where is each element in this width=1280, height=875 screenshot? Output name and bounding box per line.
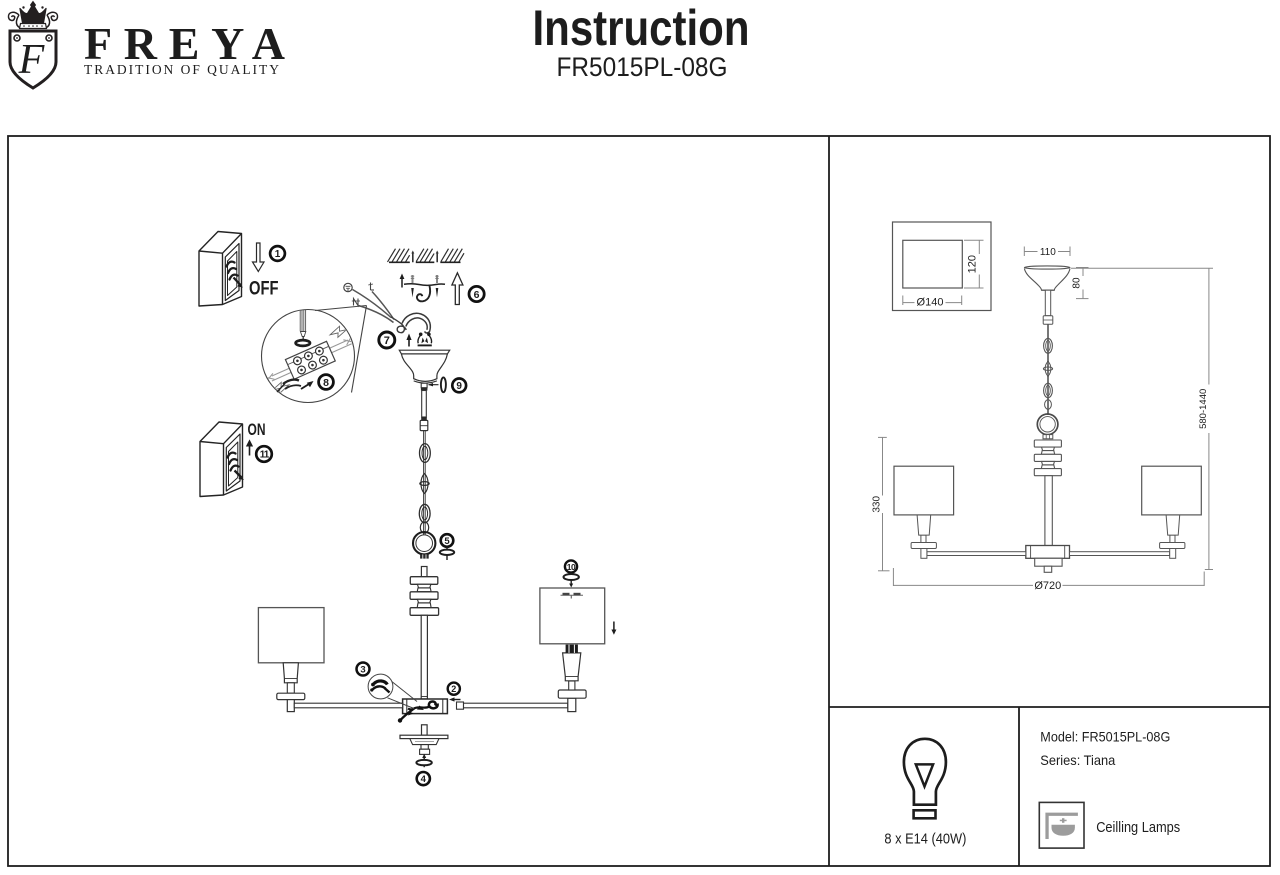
svg-text:Ø720: Ø720 — [1034, 580, 1061, 592]
svg-text:10: 10 — [567, 562, 576, 572]
svg-text:7: 7 — [384, 335, 390, 347]
svg-text:330: 330 — [871, 496, 882, 513]
svg-text:5: 5 — [444, 536, 450, 547]
svg-text:3: 3 — [360, 665, 365, 676]
svg-text:Model: FR5015PL-08G: Model: FR5015PL-08G — [1040, 728, 1170, 744]
svg-text:TRADITION OF QUALITY: TRADITION OF QUALITY — [84, 62, 281, 77]
svg-text:ON: ON — [248, 421, 266, 439]
svg-text:80: 80 — [1072, 277, 1083, 289]
svg-text:9: 9 — [456, 381, 462, 392]
svg-text:11: 11 — [260, 450, 270, 461]
svg-text:Series: Tiana: Series: Tiana — [1040, 752, 1115, 768]
svg-text:OFF: OFF — [249, 278, 279, 300]
svg-text:2: 2 — [451, 684, 456, 694]
svg-text:FR5015PL-08G: FR5015PL-08G — [557, 52, 728, 82]
svg-text:F: F — [18, 37, 45, 83]
svg-text:4: 4 — [421, 774, 427, 785]
svg-text:Instruction: Instruction — [533, 0, 750, 56]
svg-text:6: 6 — [474, 289, 480, 301]
svg-text:1: 1 — [275, 249, 281, 260]
svg-text:8: 8 — [323, 377, 329, 389]
svg-text:110: 110 — [1040, 247, 1056, 258]
svg-text:Ceilling Lamps: Ceilling Lamps — [1096, 820, 1180, 836]
svg-text:120: 120 — [967, 255, 979, 273]
svg-text:Ø140: Ø140 — [917, 297, 944, 309]
svg-text:580-1440: 580-1440 — [1198, 389, 1209, 429]
svg-text:8 x E14 (40W): 8 x E14 (40W) — [884, 831, 966, 848]
